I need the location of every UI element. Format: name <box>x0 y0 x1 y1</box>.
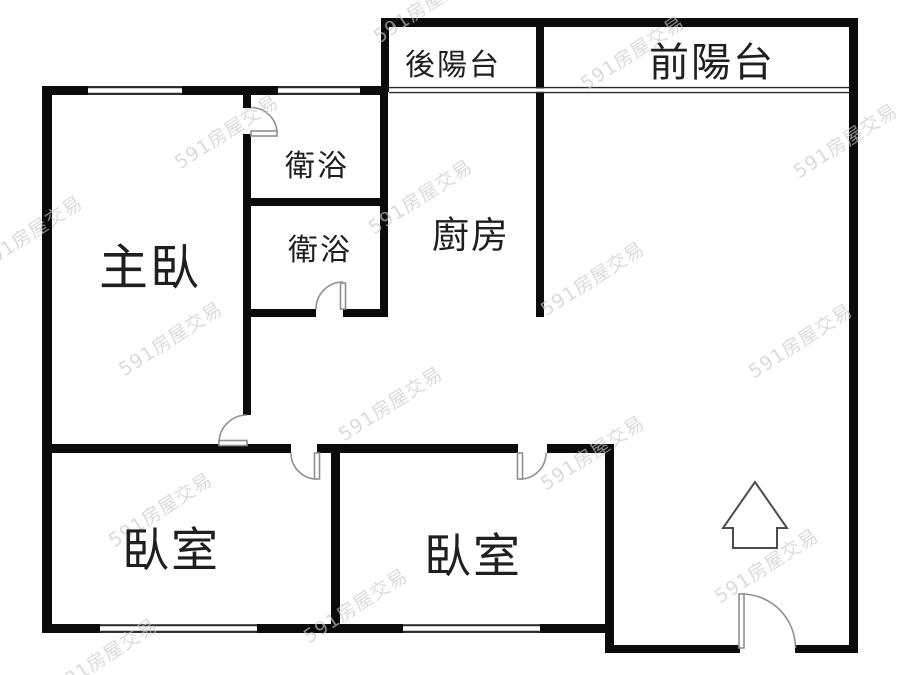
room-label-rear-balcony: 後陽台 <box>405 40 501 84</box>
room-label-kitchen: 廚房 <box>432 205 510 259</box>
wall-bedrooms-top-a <box>42 444 291 453</box>
room-label-master-bedroom: 主臥 <box>99 229 201 300</box>
floorplan-canvas: 後陽台 前陽台 衛浴 衛浴 廚房 主臥 臥室 臥室 591房屋交易591房屋交易… <box>0 0 900 675</box>
wall-master-bath-main <box>243 134 251 415</box>
window-balcony-band <box>389 88 849 91</box>
wall-kitchen-right <box>536 92 544 317</box>
wall-outer-right <box>849 18 858 653</box>
wall-bath-divider <box>243 198 388 206</box>
wall-bedrooms-top-b <box>317 444 518 453</box>
door-leaf-bathroom-top <box>251 131 277 136</box>
door-arc-bedroom-middle <box>520 453 546 479</box>
wall-bedroom-mid-right <box>605 444 614 653</box>
door-arc-bedroom-left <box>291 453 317 479</box>
wall-balcony-divider <box>536 18 544 92</box>
door-leaf-bedroom-left <box>315 453 320 479</box>
door-arc-master-bedroom <box>219 415 247 443</box>
wall-outer-left <box>42 86 52 633</box>
room-label-bathroom-bottom: 衛浴 <box>288 225 352 269</box>
wall-bath2-bottom-left <box>243 309 316 317</box>
north-arrow-icon <box>723 482 787 548</box>
wall-bedroom-divider <box>331 444 340 633</box>
room-label-bedroom-left: 臥室 <box>122 512 220 581</box>
wall-balcony-left <box>381 18 389 92</box>
wall-master-bath-upper <box>243 92 251 108</box>
door-arc-entrance <box>742 594 796 648</box>
door-arc-bathroom-bottom <box>316 282 343 309</box>
door-leaf-bedroom-middle <box>518 453 523 479</box>
wall-bedrooms-top-c <box>547 444 614 453</box>
door-arc-bathroom-top <box>251 108 277 134</box>
wall-balcony-top <box>381 18 858 27</box>
door-leaf-bathroom-bottom <box>341 283 346 309</box>
room-label-front-balcony: 前陽台 <box>649 30 775 88</box>
door-leaf-entrance <box>739 594 744 648</box>
wall-bath2-bottom-right <box>343 309 388 317</box>
room-label-bedroom-middle: 臥室 <box>424 518 522 587</box>
wall-entry-bottom-left <box>605 645 740 653</box>
wall-entry-bottom-right <box>795 645 858 653</box>
room-label-bathroom-top: 衛浴 <box>285 141 349 185</box>
door-leaf-master-bedroom <box>219 441 247 446</box>
